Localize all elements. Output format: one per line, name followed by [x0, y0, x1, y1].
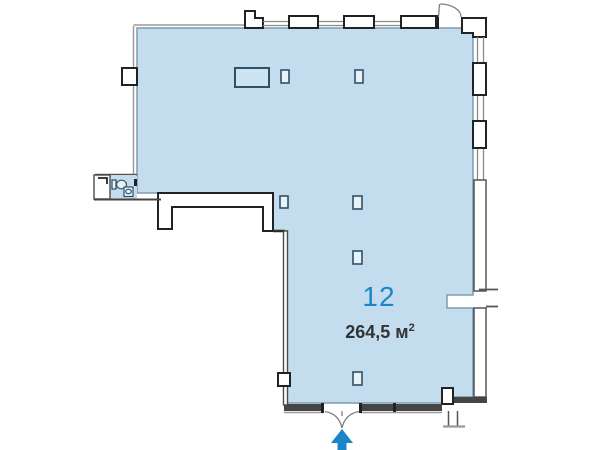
area-label: 264,5 м2 [305, 322, 455, 344]
top-wall-pillars [289, 16, 438, 28]
lower-wall-stub [443, 411, 465, 427]
large-column [235, 68, 269, 87]
bottom-right-wall [453, 397, 487, 403]
unit-number-label: 12 [329, 283, 429, 311]
floor-plan: 12 264,5 м2 [0, 0, 600, 450]
lower-wall-pilaster [278, 373, 290, 386]
entrance-door [325, 411, 359, 428]
top-windows [263, 22, 401, 26]
area-superscript: 2 [409, 322, 415, 334]
right-windows [478, 37, 484, 180]
right-wall-opening-stubs [479, 290, 498, 307]
right-wall-lower [474, 308, 486, 397]
floor-plan-drawing [0, 0, 600, 450]
bottom-wall [284, 403, 442, 413]
right-wall-upper [474, 180, 486, 291]
top-step-pillar [245, 11, 263, 28]
area-value: 264,5 м [345, 322, 408, 342]
unit-floor-area [137, 28, 473, 403]
stair-shaft [158, 193, 273, 231]
wc-jamb-tick [134, 179, 137, 186]
bottom-pier [442, 388, 453, 404]
toilet-tank-icon [112, 180, 116, 189]
left-wall-pilaster [122, 68, 137, 85]
entrance-arrow-icon [331, 429, 353, 450]
